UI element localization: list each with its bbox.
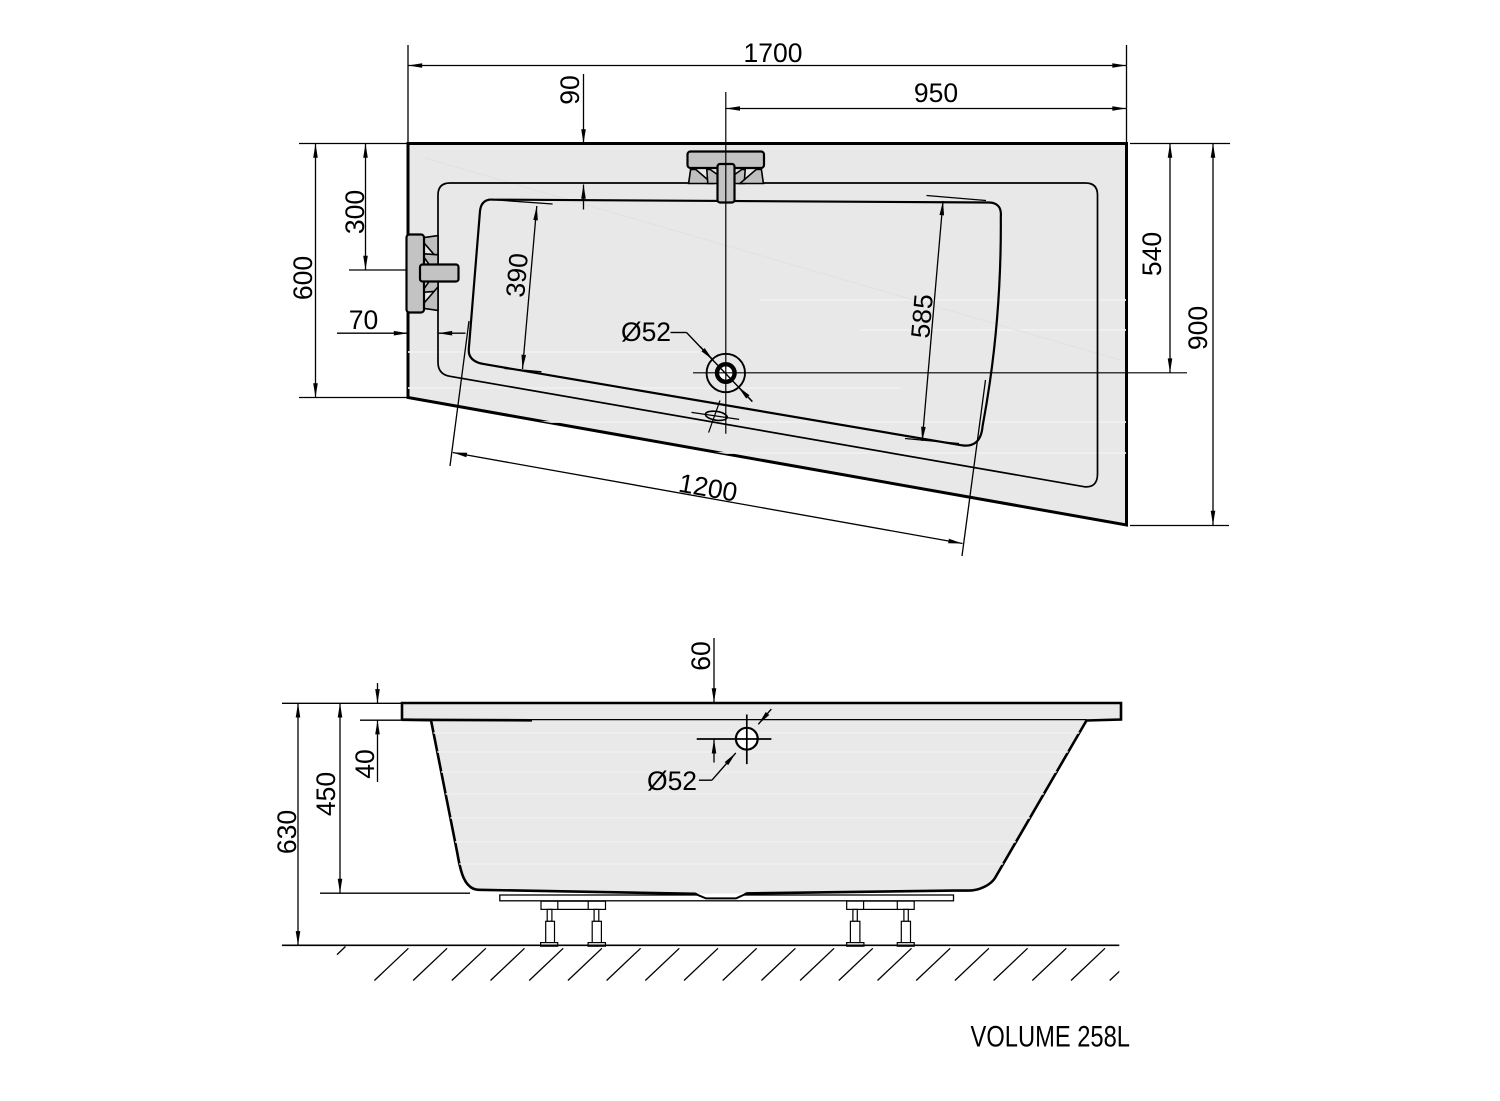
svg-text:Ø52: Ø52	[621, 317, 671, 347]
svg-text:70: 70	[349, 305, 378, 335]
svg-text:450: 450	[311, 772, 341, 816]
svg-text:900: 900	[1183, 306, 1213, 350]
svg-text:300: 300	[340, 190, 370, 234]
svg-text:585: 585	[905, 293, 939, 340]
svg-text:40: 40	[350, 749, 380, 778]
svg-text:600: 600	[288, 256, 318, 300]
svg-text:Ø52: Ø52	[647, 766, 697, 796]
svg-text:390: 390	[500, 252, 534, 299]
svg-text:VOLUME 258L: VOLUME 258L	[971, 1021, 1131, 1054]
svg-text:630: 630	[272, 810, 302, 854]
svg-text:1700: 1700	[744, 38, 803, 68]
svg-text:60: 60	[686, 641, 716, 670]
svg-text:950: 950	[914, 78, 958, 108]
svg-text:90: 90	[555, 75, 585, 104]
svg-text:540: 540	[1137, 232, 1167, 276]
